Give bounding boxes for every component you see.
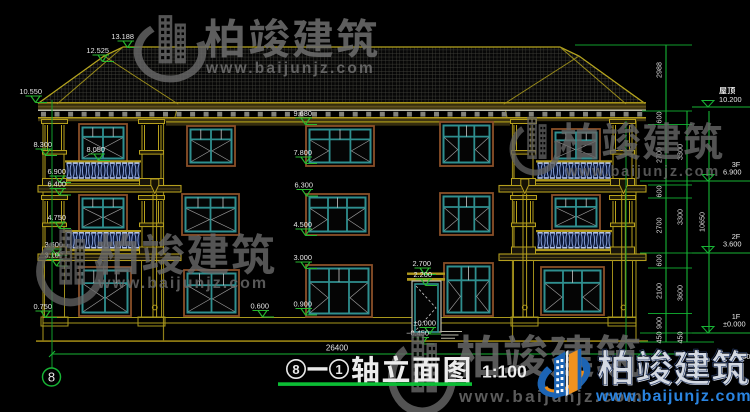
svg-text:www.baijunjz.com: www.baijunjz.com [595, 388, 750, 405]
svg-text:3600: 3600 [676, 285, 685, 301]
svg-text:±0.000: ±0.000 [723, 320, 746, 329]
svg-text:10650: 10650 [698, 212, 707, 232]
svg-text:10.550: 10.550 [19, 87, 42, 96]
svg-text:450: 450 [676, 332, 685, 344]
svg-text:12.525: 12.525 [86, 46, 109, 55]
svg-text:6.300: 6.300 [295, 181, 314, 190]
svg-text:600: 600 [655, 112, 664, 124]
svg-text:2.200: 2.200 [414, 270, 433, 279]
svg-text:600: 600 [655, 255, 664, 267]
svg-text:3.000: 3.000 [294, 253, 313, 262]
svg-text:26400: 26400 [326, 344, 349, 353]
svg-text:3300: 3300 [676, 209, 685, 225]
svg-text:2.700: 2.700 [413, 259, 432, 268]
svg-text:8: 8 [48, 370, 55, 385]
svg-text:8.050: 8.050 [87, 145, 106, 154]
svg-text:600: 600 [655, 186, 664, 198]
svg-text:450: 450 [655, 332, 664, 344]
svg-text:6.400: 6.400 [48, 180, 67, 189]
svg-text:3.600: 3.600 [723, 240, 742, 249]
svg-text:9.680: 9.680 [294, 109, 313, 118]
svg-text:6.900: 6.900 [48, 167, 67, 176]
svg-text:4.500: 4.500 [294, 220, 313, 229]
svg-text:www.baijunjz.com: www.baijunjz.com [97, 275, 268, 292]
svg-text:10.200: 10.200 [719, 95, 742, 104]
svg-text:1: 1 [335, 362, 342, 377]
svg-text:7.800: 7.800 [294, 148, 313, 157]
svg-text:8.300: 8.300 [34, 140, 53, 149]
svg-text:0.750: 0.750 [34, 302, 53, 311]
svg-text:2100: 2100 [655, 283, 664, 299]
svg-text:1:100: 1:100 [482, 362, 527, 382]
svg-text:900: 900 [655, 317, 664, 329]
svg-text:6.900: 6.900 [723, 168, 742, 177]
svg-text:4.750: 4.750 [48, 213, 67, 222]
svg-text:0.600: 0.600 [251, 302, 270, 311]
svg-text:www.baijunjz.com: www.baijunjz.com [565, 164, 720, 180]
svg-text:2988: 2988 [655, 62, 664, 78]
svg-text:www.baijunjz.com: www.baijunjz.com [205, 60, 375, 77]
svg-text:13.188: 13.188 [111, 32, 134, 41]
svg-text:2700: 2700 [655, 218, 664, 234]
svg-text:±0.000: ±0.000 [413, 319, 436, 328]
svg-text:0.900: 0.900 [294, 300, 313, 309]
svg-text:8: 8 [292, 362, 299, 377]
